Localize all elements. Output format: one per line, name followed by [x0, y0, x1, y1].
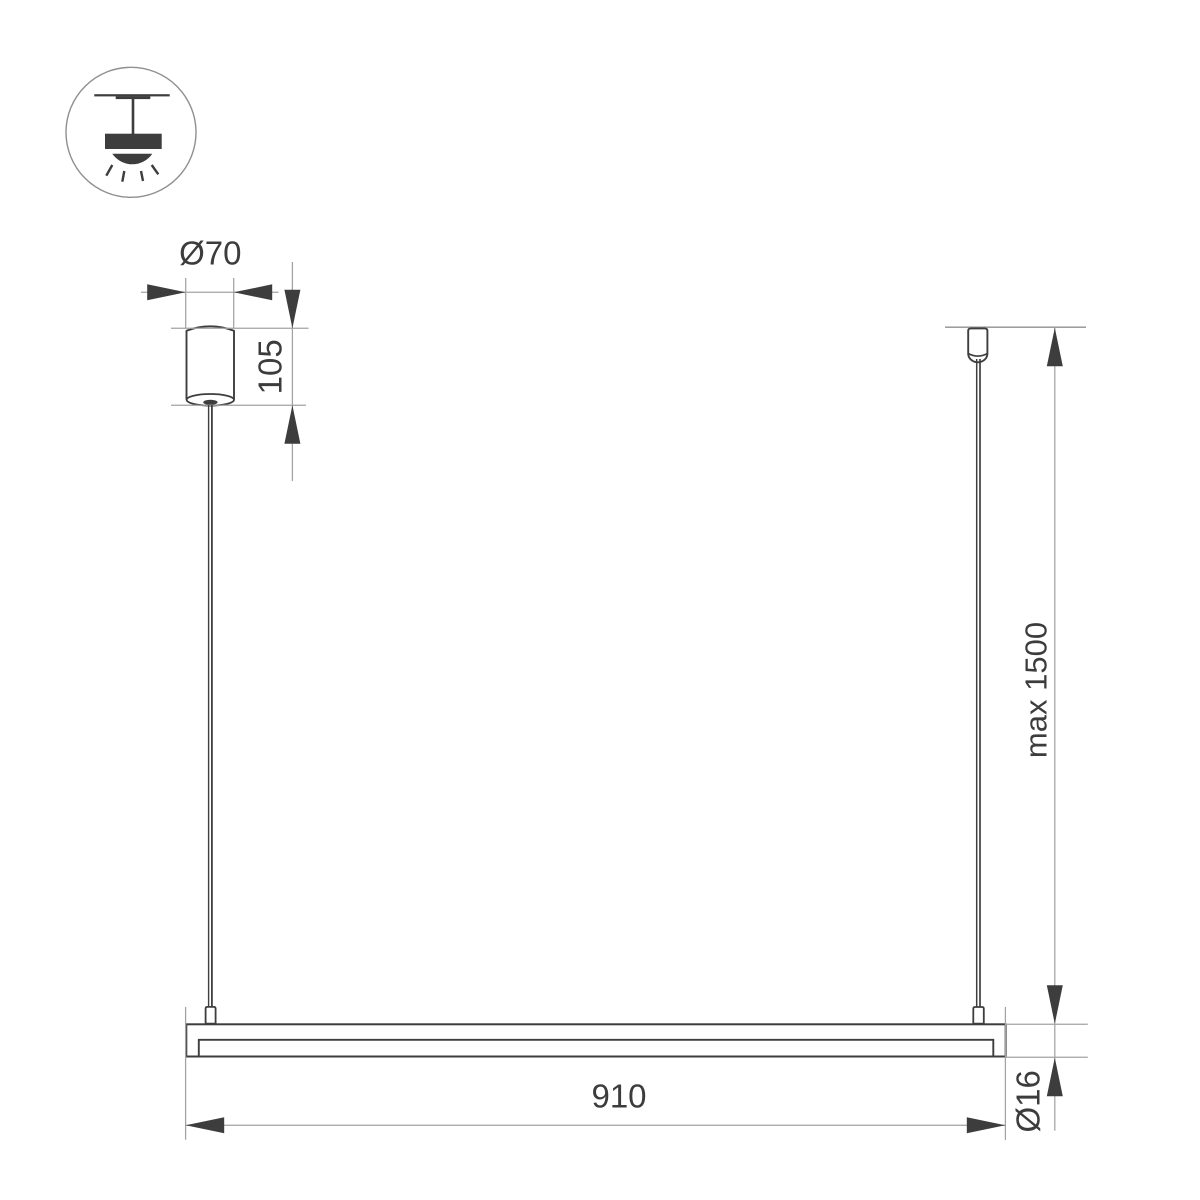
svg-text:Ø16: Ø16	[1010, 1070, 1047, 1132]
svg-text:910: 910	[591, 1078, 646, 1115]
svg-text:105: 105	[252, 339, 289, 394]
svg-text:max 1500: max 1500	[1019, 622, 1054, 758]
svg-text:Ø70: Ø70	[179, 235, 241, 272]
